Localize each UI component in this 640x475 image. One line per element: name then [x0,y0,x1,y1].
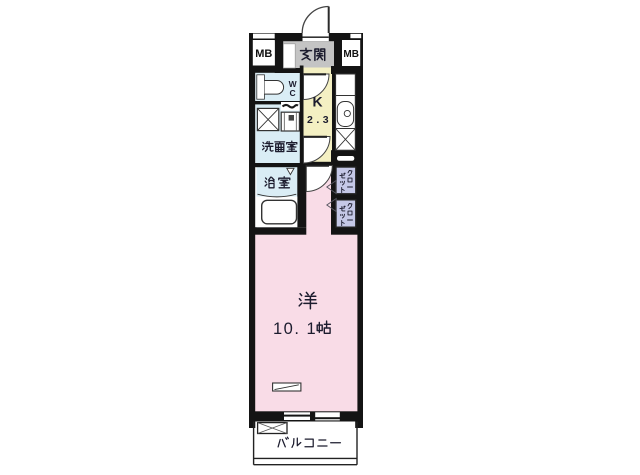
svg-text:C: C [290,88,296,98]
svg-text:10. 1: 10. 1 [273,320,317,338]
svg-text:2.3: 2.3 [307,114,332,126]
svg-text:K: K [313,94,323,110]
svg-text:MB: MB [255,48,272,60]
svg-text:MB: MB [343,49,359,60]
